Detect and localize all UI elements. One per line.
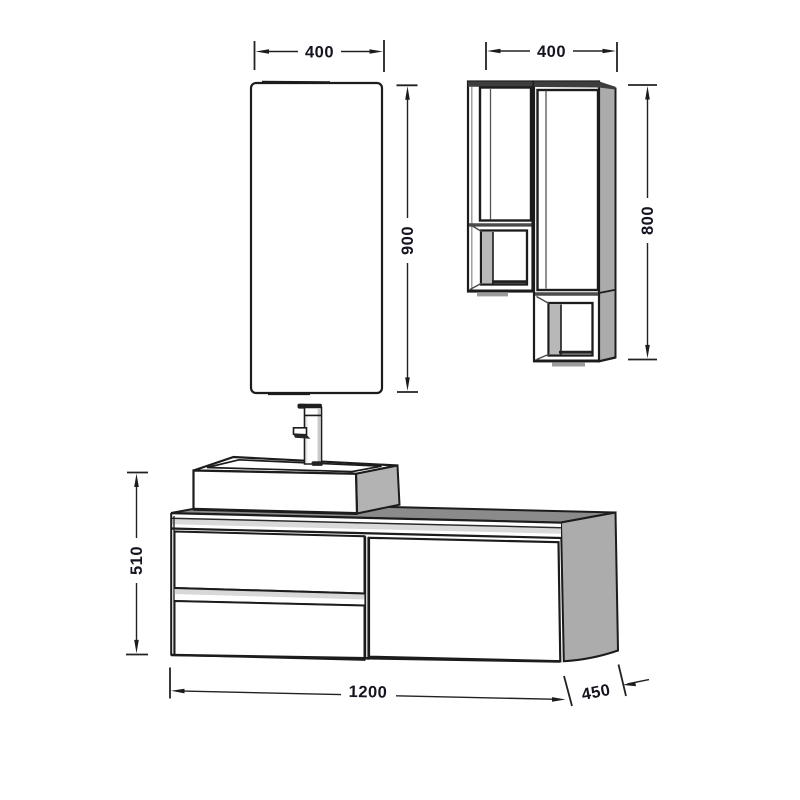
svg-text:900: 900 <box>399 226 417 255</box>
svg-text:400: 400 <box>537 43 566 61</box>
svg-text:1200: 1200 <box>348 683 387 702</box>
svg-text:510: 510 <box>128 546 146 575</box>
svg-text:400: 400 <box>305 44 334 62</box>
svg-text:800: 800 <box>639 206 657 235</box>
